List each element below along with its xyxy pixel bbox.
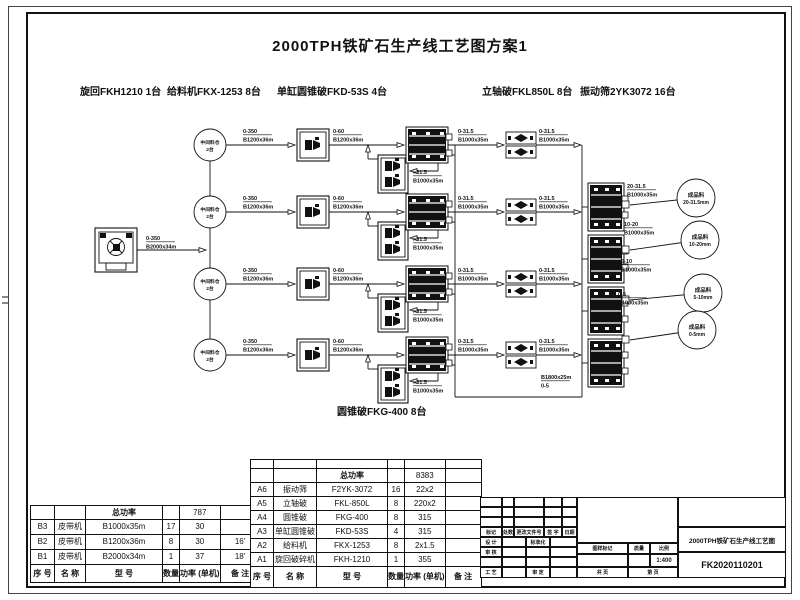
table-cell: 单缸圆锥破 xyxy=(274,525,317,539)
title-block-cell xyxy=(577,554,628,567)
table-row: 序 号名 称型 号数量功率 (单机)备 注 xyxy=(251,567,482,588)
title-block-cell xyxy=(562,517,577,527)
cone-crusher-label: 圆锥破FKG-400 8台 xyxy=(337,403,426,418)
title-block-cell xyxy=(526,557,550,567)
belt-conveyor-table: 总功率787B3皮带机B1000x35m1730B2皮带机B1200x36m83… xyxy=(30,505,261,583)
page-title: 2000TPH铁矿石生产线工艺图方案1 xyxy=(0,35,800,56)
title-block-cell: 审 核 xyxy=(480,547,502,557)
title-block-cell: 第 页 xyxy=(628,567,678,578)
title-block-cell: 处数 xyxy=(502,527,514,537)
title-block-cell xyxy=(544,517,562,527)
equipment-count-label: 振动筛2YK3072 16台 xyxy=(580,83,676,98)
title-block-cell xyxy=(550,547,577,557)
table-cell: 22x2 xyxy=(405,483,446,497)
title-block-cell xyxy=(502,537,526,547)
table-row: B2皮带机B1200x36m83016' xyxy=(31,535,261,550)
title-block-cell: 审 定 xyxy=(526,567,550,578)
title-block-cell xyxy=(480,497,502,507)
drawing-sheet: 0-350B2000x34m0-350B1200x36m0-60B1200x36… xyxy=(0,0,800,600)
table-cell: A2 xyxy=(251,539,274,553)
title-block-cell: 签 字 xyxy=(544,527,562,537)
table-cell: 8383 xyxy=(405,469,446,483)
equipment-count-label: 立轴破FKL850L 8台 xyxy=(482,83,572,98)
table-cell: 圆锥破 xyxy=(274,511,317,525)
table-cell xyxy=(445,511,481,525)
table-cell: A6 xyxy=(251,483,274,497)
table-cell: 30 xyxy=(180,535,221,550)
table-cell: 8 xyxy=(163,535,180,550)
title-block-cell xyxy=(628,554,650,567)
title-block-cell xyxy=(514,497,544,507)
table-row: A3单缸圆锥破FKD-53S4315 xyxy=(251,525,482,539)
title-block-cell xyxy=(514,517,544,527)
table-cell: B2 xyxy=(31,535,55,550)
table-row xyxy=(251,460,482,469)
table-cell: 315 xyxy=(405,511,446,525)
table-cell: 皮带机 xyxy=(55,520,86,535)
title-block-cell xyxy=(562,507,577,517)
table-cell: 787 xyxy=(180,506,221,520)
table-cell: FKX-1253 xyxy=(317,539,388,553)
table-cell xyxy=(445,539,481,553)
table-cell xyxy=(445,460,481,469)
table-cell: 振动筛 xyxy=(274,483,317,497)
table-cell xyxy=(163,506,180,520)
table-cell: FKH-1210 xyxy=(317,553,388,567)
table-cell: 17 xyxy=(163,520,180,535)
table-row: A6振动筛F2YK-30721622x2 xyxy=(251,483,482,497)
title-block-cell xyxy=(550,557,577,567)
table-row: B3皮带机B1000x35m1730 xyxy=(31,520,261,535)
table-cell: FKL-850L xyxy=(317,497,388,511)
title-block-cell xyxy=(502,547,526,557)
table-cell: A1 xyxy=(251,553,274,567)
table-cell: 1 xyxy=(388,553,405,567)
title-block-cell xyxy=(544,507,562,517)
title-block-cell xyxy=(550,537,577,547)
table-row: A4圆锥破FKG-4008315 xyxy=(251,511,482,525)
table-cell: FKD-53S xyxy=(317,525,388,539)
table-cell: 220x2 xyxy=(405,497,446,511)
table-cell xyxy=(445,483,481,497)
table-cell: 总功率 xyxy=(86,506,163,520)
table-cell: 16 xyxy=(388,483,405,497)
table-cell: 8 xyxy=(388,511,405,525)
title-block-cell xyxy=(502,557,526,567)
table-cell: B3 xyxy=(31,520,55,535)
drawing-number: FK2020110201 xyxy=(678,552,786,578)
table-cell: 315 xyxy=(405,525,446,539)
table-cell xyxy=(55,506,86,520)
table-row: A1旋回破碎机FKH-12101355 xyxy=(251,553,482,567)
title-block-cell: 共 页 xyxy=(577,567,628,578)
title-block-cell xyxy=(480,557,502,567)
table-cell: 4 xyxy=(388,525,405,539)
table-cell: 30 xyxy=(180,520,221,535)
title-block-cell xyxy=(502,517,514,527)
title-block-cell xyxy=(502,567,526,578)
table-cell xyxy=(388,469,405,483)
table-row: B1皮带机B2000x34m13718' xyxy=(31,550,261,565)
table-cell: B1 xyxy=(31,550,55,565)
title-block-cell xyxy=(526,547,550,557)
table-cell: 355 xyxy=(405,553,446,567)
table-header-cell: 数量 xyxy=(388,567,405,588)
title-block-cell xyxy=(562,497,577,507)
table-cell xyxy=(251,460,274,469)
table-cell xyxy=(445,497,481,511)
equipment-count-label: 给料机FKX-1253 8台 xyxy=(167,83,261,98)
table-row: A2给料机FKX-125382x1.5 xyxy=(251,539,482,553)
title-block-cell xyxy=(502,507,514,517)
table-header-cell: 功率 (单机) xyxy=(405,567,446,588)
title-block-cell: 标准化 xyxy=(526,537,550,547)
table-header-cell: 名 称 xyxy=(55,565,86,583)
equipment-count-label: 单缸圆锥破FKD-53S 4台 xyxy=(277,83,387,98)
table-cell: A4 xyxy=(251,511,274,525)
table-cell: A5 xyxy=(251,497,274,511)
table-cell xyxy=(31,506,55,520)
table-header-cell: 序 号 xyxy=(31,565,55,583)
table-cell: B1200x36m xyxy=(86,535,163,550)
table-cell xyxy=(445,525,481,539)
title-block-cell: 质量 xyxy=(628,543,650,554)
table-cell xyxy=(251,469,274,483)
table-cell: 立轴破 xyxy=(274,497,317,511)
table-cell: 8 xyxy=(388,539,405,553)
title-block-cell xyxy=(678,497,786,527)
table-header-cell: 型 号 xyxy=(317,567,388,588)
table-cell xyxy=(274,469,317,483)
table-cell: 皮带机 xyxy=(55,535,86,550)
title-block-cell: 图样标记 xyxy=(577,543,628,554)
table-cell xyxy=(274,460,317,469)
table-row: 序 号名 称型 号数量功率 (单机)备 注 xyxy=(31,565,261,583)
table-cell: 2x1.5 xyxy=(405,539,446,553)
table-header-cell: 型 号 xyxy=(86,565,163,583)
table-header-cell: 功率 (单机) xyxy=(180,565,221,583)
table-cell: A3 xyxy=(251,525,274,539)
title-block-cell xyxy=(550,567,577,578)
table-row: 总功率787 xyxy=(31,506,261,520)
table-cell xyxy=(445,469,481,483)
title-block-cell xyxy=(480,507,502,517)
equipment-count-label: 旋回FKH1210 1台 xyxy=(80,83,161,98)
table-cell: B1000x35m xyxy=(86,520,163,535)
title-block-cell: 设 计 xyxy=(480,537,502,547)
table-cell xyxy=(445,553,481,567)
table-cell: B2000x34m xyxy=(86,550,163,565)
title-block-cell: 更改文件号 xyxy=(514,527,544,537)
drawing-title: 2000TPH铁矿石生产线工艺图 xyxy=(678,527,786,552)
table-cell: 1 xyxy=(163,550,180,565)
table-cell: 给料机 xyxy=(274,539,317,553)
table-header-cell: 名 称 xyxy=(274,567,317,588)
table-cell: FKG-400 xyxy=(317,511,388,525)
title-block-cell: 1:400 xyxy=(650,554,678,567)
table-header-cell: 序 号 xyxy=(251,567,274,588)
table-cell xyxy=(388,460,405,469)
title-block-cell: 比例 xyxy=(650,543,678,554)
table-cell: 总功率 xyxy=(317,469,388,483)
table-row: A5立轴破FKL-850L8220x2 xyxy=(251,497,482,511)
title-block-cell xyxy=(480,517,502,527)
table-row: 总功率8383 xyxy=(251,469,482,483)
title-block-cell xyxy=(544,497,562,507)
table-cell xyxy=(317,460,388,469)
title-block-cell xyxy=(577,497,678,543)
table-cell: 皮带机 xyxy=(55,550,86,565)
table-cell: 37 xyxy=(180,550,221,565)
table-header-cell: 备 注 xyxy=(445,567,481,588)
title-block-cell xyxy=(514,507,544,517)
title-block-cell: 工 艺 xyxy=(480,567,502,578)
title-block: 标记处数更改文件号签 字日期设 计标准化审 核工 艺审 定图样标记质量比例1:4… xyxy=(480,497,786,578)
table-cell: 旋回破碎机 xyxy=(274,553,317,567)
table-cell: F2YK-3072 xyxy=(317,483,388,497)
equipment-table: 总功率8383A6振动筛F2YK-30721622x2A5立轴破FKL-850L… xyxy=(250,459,482,588)
table-cell: 8 xyxy=(388,497,405,511)
table-header-cell: 数量 xyxy=(163,565,180,583)
title-block-cell xyxy=(502,497,514,507)
title-block-cell: 日期 xyxy=(562,527,577,537)
title-block-cell: 标记 xyxy=(480,527,502,537)
table-cell xyxy=(405,460,446,469)
